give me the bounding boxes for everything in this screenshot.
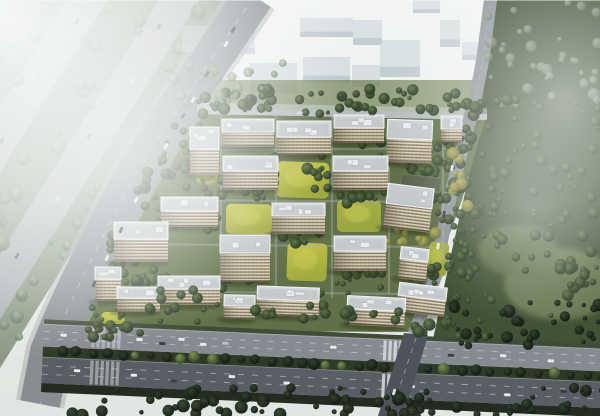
aerial-render-stage xyxy=(0,0,600,416)
fog-overlays xyxy=(0,0,600,416)
aerial-residential-render xyxy=(0,0,600,416)
atmosphere-veil xyxy=(0,0,600,416)
